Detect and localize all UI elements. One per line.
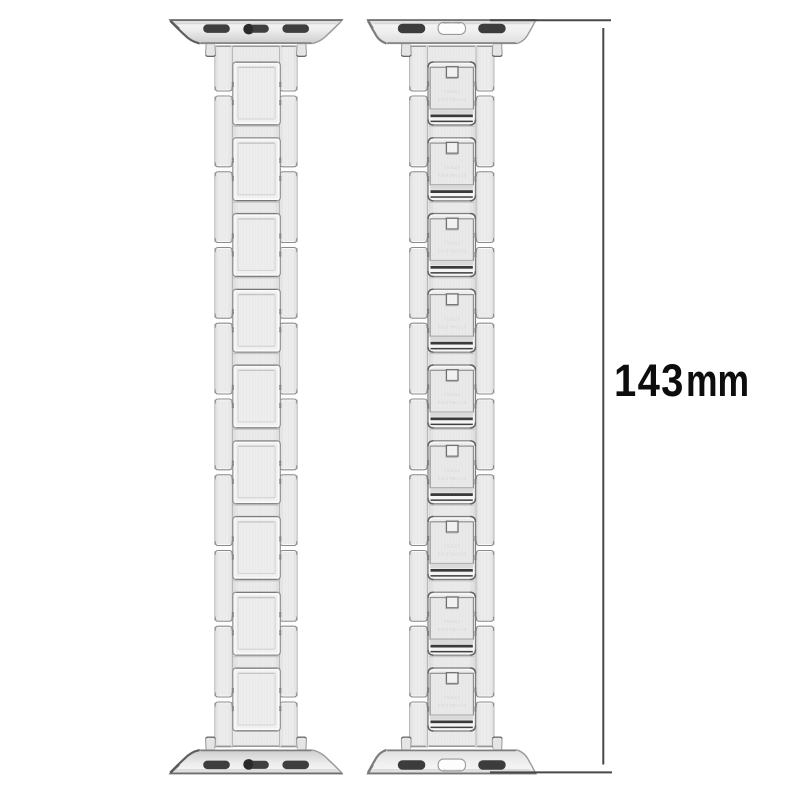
svg-text:143: 143 (614, 356, 685, 407)
svg-text:mm: mm (686, 355, 749, 406)
